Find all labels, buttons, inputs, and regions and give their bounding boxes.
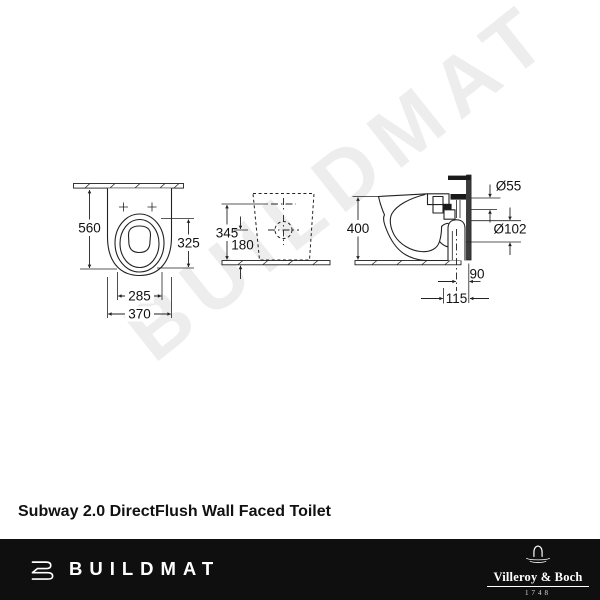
floor-section-bar	[222, 261, 330, 265]
villeroy-boch-crest-icon	[516, 545, 560, 565]
footer-bar: BUILDMAT Villeroy & Boch 1748	[0, 539, 600, 600]
wall-section-bar	[74, 184, 184, 189]
buildmat-wordmark: BUILDMAT	[69, 558, 220, 580]
rear-view: 345 180	[212, 194, 331, 280]
buildmat-b-icon	[30, 558, 56, 580]
buildmat-logo: BUILDMAT	[30, 558, 220, 580]
dim-side-inlet-diameter: Ø55	[496, 179, 522, 194]
dim-front-height: 560	[78, 221, 101, 236]
front-view: 560 325 285 370	[74, 184, 205, 322]
water-inlet-centerline-cross	[271, 198, 296, 210]
wall-section-bar	[467, 175, 472, 260]
outlet-centerline-cross	[268, 215, 299, 245]
dim-side-outlet-diameter: Ø102	[493, 222, 526, 237]
dim-front-bowl-depth: 325	[177, 236, 200, 251]
page-title: Subway 2.0 DirectFlush Wall Faced Toilet	[18, 503, 331, 521]
dim-front-width: 370	[128, 307, 151, 322]
dim-front-seat-width: 285	[128, 289, 151, 304]
dim-side-height: 400	[347, 221, 370, 236]
dim-side-outlet-to-wall: 90	[469, 267, 484, 282]
dim-side-outlet-setout: 115	[446, 291, 468, 306]
villeroy-boch-wordmark: Villeroy & Boch	[487, 570, 589, 585]
floor-section-bar	[355, 261, 461, 265]
logo-divider	[487, 586, 589, 587]
dim-rear-outlet-height: 180	[231, 238, 254, 253]
side-view: 400 Ø55 Ø102 90 115	[343, 175, 527, 306]
technical-drawing: 560 325 285 370	[0, 0, 600, 540]
established-year: 1748	[487, 589, 589, 597]
inlet-cap	[448, 176, 471, 180]
villeroy-boch-logo: Villeroy & Boch 1748	[487, 545, 589, 597]
product-spec-image: BUILDMAT 560	[0, 0, 600, 600]
